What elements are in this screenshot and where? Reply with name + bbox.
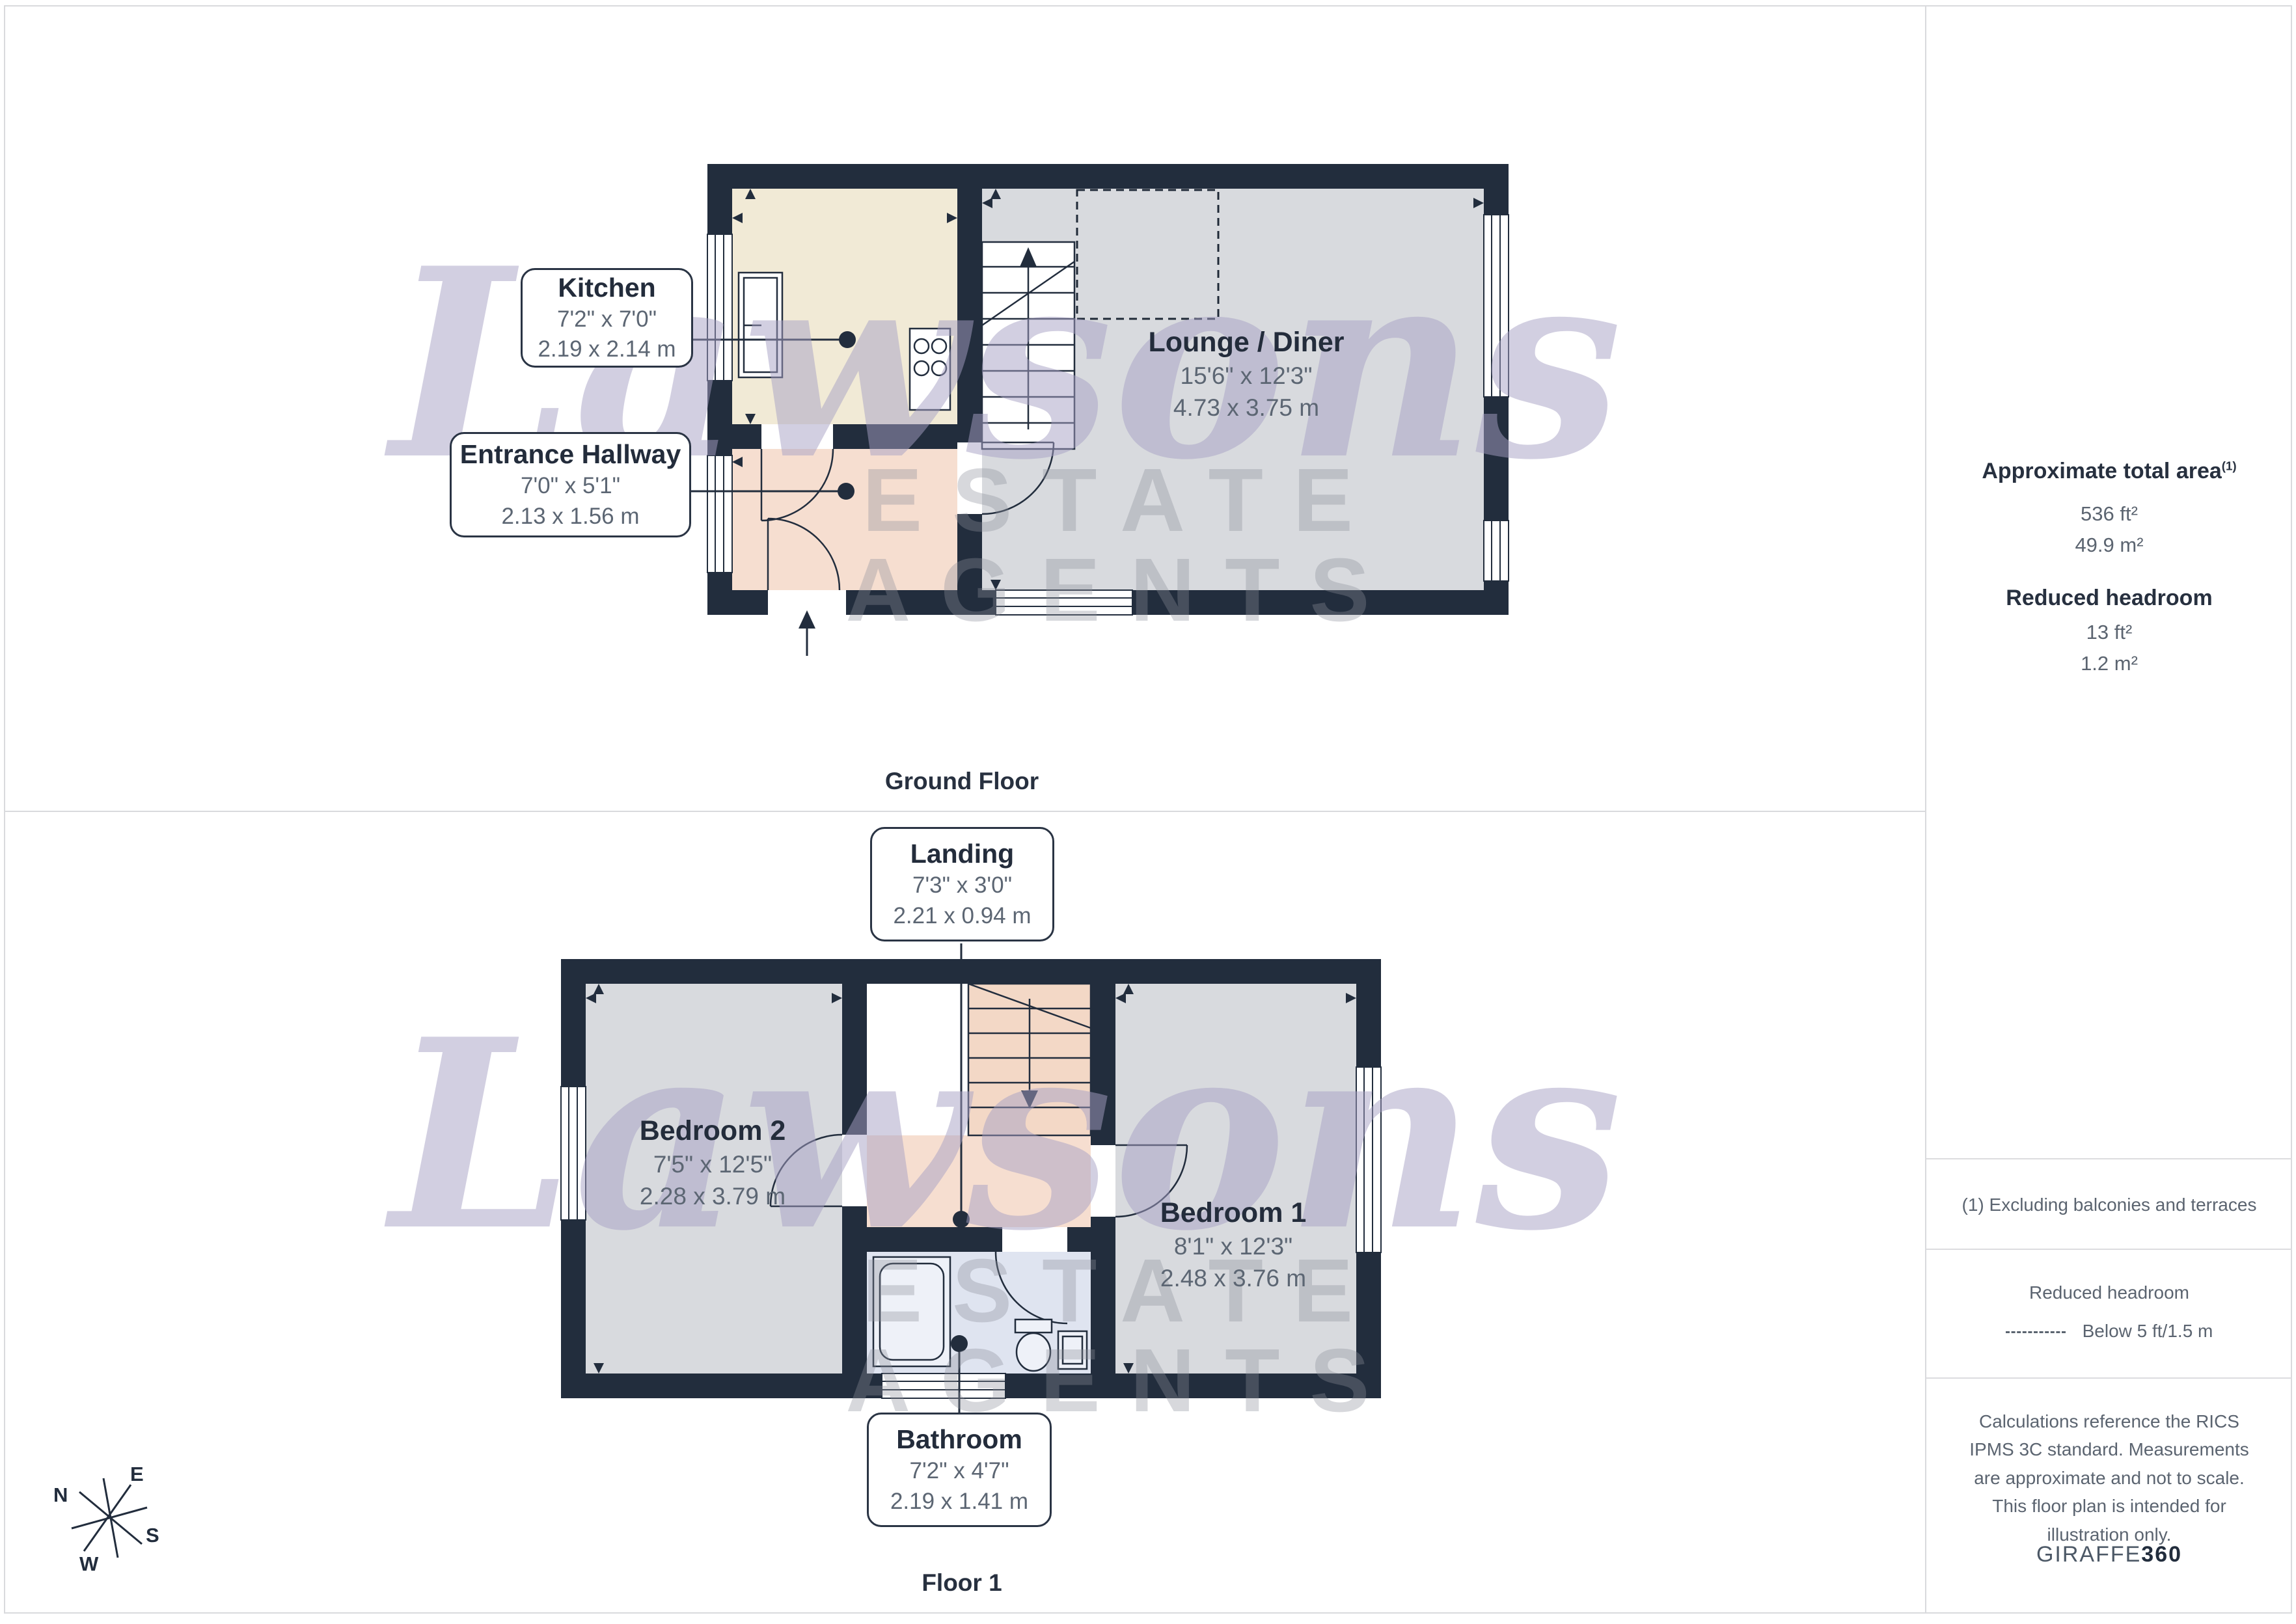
bathroom-name: Bathroom — [896, 1423, 1022, 1456]
bathroom-metric: 2.19 x 1.41 m — [890, 1487, 1028, 1517]
panel-divider — [4, 811, 1925, 812]
compass-star — [52, 1463, 169, 1580]
footnote: (1) Excluding balconies and terraces — [1926, 1195, 2292, 1215]
reduced-ft: 13 ft² — [1926, 621, 2292, 644]
credit: GIRAFFE360 — [1926, 1542, 2292, 1567]
sidebar-divider-2 — [1926, 1249, 2292, 1250]
reduced-heading: Reduced headroom — [1926, 586, 2292, 611]
area-heading: Approximate total area(1) — [1926, 459, 2292, 484]
bedroom1-floor — [1115, 984, 1356, 1374]
bedroom2-label: Bedroom 2 7'5" x 12'5" 2.28 x 3.79 m — [573, 1114, 853, 1212]
area-heading-sup: (1) — [2222, 459, 2237, 473]
area-m: 49.9 m² — [1926, 534, 2292, 557]
kitchen-metric: 2.19 x 2.14 m — [538, 334, 676, 364]
frame-left — [4, 5, 5, 1614]
kitchen-name: Kitchen — [558, 271, 655, 304]
disclaimer: Calculations reference the RICS IPMS 3C … — [1926, 1407, 2292, 1549]
entrance-arrow — [799, 610, 815, 656]
hallway-label: Entrance Hallway 7'0" x 5'1" 2.13 x 1.56… — [450, 432, 691, 537]
compass-rose: N E S W — [52, 1463, 169, 1580]
kitchen-imperial: 7'2" x 7'0" — [557, 304, 657, 334]
hallway-name: Entrance Hallway — [460, 438, 681, 471]
floor-1-caption: Floor 1 — [0, 1569, 1924, 1597]
credit-360: 360 — [2141, 1542, 2182, 1567]
compass-s: S — [146, 1524, 159, 1547]
bedroom1-label: Bedroom 1 8'1" x 12'3" 2.48 x 3.76 m — [1093, 1196, 1373, 1294]
landing-name: Landing — [910, 837, 1014, 871]
bathroom-imperial: 7'2" x 4'7" — [909, 1456, 1009, 1486]
bedroom2-name: Bedroom 2 — [573, 1114, 853, 1149]
area-ft: 536 ft² — [1926, 502, 2292, 526]
bedroom1-name: Bedroom 1 — [1093, 1196, 1373, 1231]
lounge-metric: 4.73 x 3.75 m — [1041, 392, 1451, 424]
landing-floor — [867, 1135, 1091, 1227]
kitchen-label: Kitchen 7'2" x 7'0" 2.19 x 2.14 m — [521, 268, 693, 368]
lounge-label: Lounge / Diner 15'6" x 12'3" 4.73 x 3.75… — [1041, 325, 1451, 424]
staircase-down — [968, 984, 1091, 1135]
legend-heading: Reduced headroom — [1926, 1282, 2292, 1303]
legend-label: Below 5 ft/1.5 m — [2083, 1321, 2213, 1341]
bedroom2-metric: 2.28 x 3.79 m — [573, 1181, 853, 1213]
bedroom1-metric: 2.48 x 3.76 m — [1093, 1263, 1373, 1295]
ground-floor-caption: Ground Floor — [0, 768, 1924, 795]
sidebar-divider-1 — [1926, 1158, 2292, 1159]
credit-giraffe: GIRAFFE — [2036, 1542, 2141, 1567]
reduced-m: 1.2 m² — [1926, 652, 2292, 675]
landing-imperial: 7'3" x 3'0" — [912, 871, 1012, 900]
bedroom1-imperial: 8'1" x 12'3" — [1093, 1231, 1373, 1263]
compass-e: E — [130, 1463, 144, 1486]
kitchen-sink — [739, 273, 782, 377]
toilet — [1015, 1319, 1052, 1371]
sidebar-divider-3 — [1926, 1377, 2292, 1379]
compass-n: N — [53, 1483, 68, 1507]
legend-row: Below 5 ft/1.5 m — [1926, 1321, 2292, 1342]
kitchen-hob — [910, 329, 950, 410]
landing-metric: 2.21 x 0.94 m — [893, 901, 1031, 931]
sink — [1058, 1331, 1087, 1369]
dashed-line-icon — [2006, 1331, 2066, 1333]
hallway-imperial: 7'0" x 5'1" — [521, 471, 620, 501]
compass-w: W — [79, 1552, 98, 1576]
sidebar: Approximate total area(1) 536 ft² 49.9 m… — [1925, 5, 2292, 1614]
floorplan-page: Lawsons ESTATE AGENTS Kitchen 7'2" x 7'0… — [0, 0, 2296, 1624]
landing-label: Landing 7'3" x 3'0" 2.21 x 0.94 m — [870, 827, 1054, 941]
hallway-floor — [732, 449, 957, 590]
lounge-name: Lounge / Diner — [1041, 325, 1451, 360]
area-heading-text: Approximate total area — [1982, 459, 2221, 483]
bathroom-label: Bathroom 7'2" x 4'7" 2.19 x 1.41 m — [867, 1413, 1052, 1527]
lounge-imperial: 15'6" x 12'3" — [1041, 360, 1451, 392]
hallway-metric: 2.13 x 1.56 m — [501, 502, 639, 532]
bathtub — [873, 1257, 950, 1366]
bedroom2-imperial: 7'5" x 12'5" — [573, 1149, 853, 1181]
